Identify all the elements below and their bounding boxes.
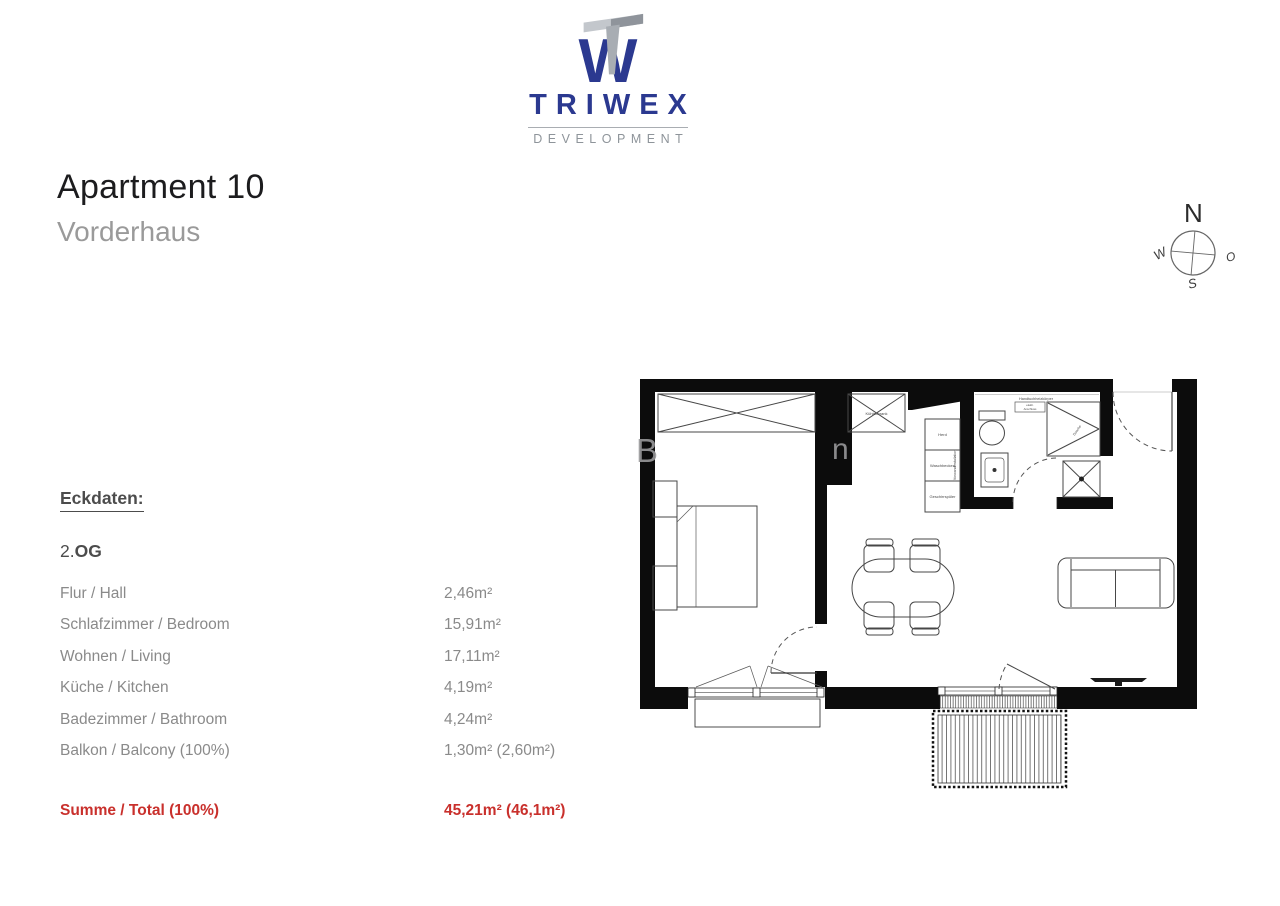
tv xyxy=(1090,678,1147,686)
fridge: Kühlschrank xyxy=(848,394,905,432)
exterior-walls xyxy=(640,379,1197,709)
brand-divider xyxy=(528,127,688,128)
total-value: 45,21m² (46,1m²) xyxy=(444,802,565,820)
entrance-door xyxy=(1113,392,1172,451)
total-row: Summe / Total (100%) 45,21m² (46,1m²) xyxy=(60,802,620,820)
room-label: Wohnen / Living xyxy=(60,648,444,666)
table-row: Küche / Kitchen 4,19m² xyxy=(60,679,620,710)
balcony-decking xyxy=(938,715,1061,783)
table-row: Balkon / Balcony (100%) 1,30m² (2,60m²) xyxy=(60,742,620,773)
living-room xyxy=(852,539,1174,686)
room-area-value: 1,30m² (2,60m²) xyxy=(444,742,555,760)
room-label: Flur / Hall xyxy=(60,585,444,603)
shower: Dusche xyxy=(1047,402,1100,456)
page-subtitle: Vorderhaus xyxy=(57,216,265,248)
nightstand xyxy=(653,481,677,517)
toilet xyxy=(979,411,1005,445)
watermark-fragment: n xyxy=(832,433,849,466)
room-area-value: 15,91m² xyxy=(444,616,501,634)
double-bed xyxy=(653,481,757,610)
dining-chair xyxy=(864,539,940,635)
room-label: Badezimmer / Bathroom xyxy=(60,711,444,729)
brand-logo: W TRIWEX DEVELOPMENT xyxy=(508,10,708,146)
wardrobe xyxy=(658,394,815,432)
sofa xyxy=(1058,558,1174,608)
watermark-fragment: B xyxy=(638,432,658,469)
balcony-threshold xyxy=(940,696,1057,708)
kitchen-shaft xyxy=(908,392,964,410)
room-label: Küche / Kitchen xyxy=(60,679,444,697)
compass-south-label: S xyxy=(1186,275,1198,292)
bathroom-door xyxy=(1013,458,1057,509)
nightstand xyxy=(653,566,677,610)
window-sill xyxy=(695,699,820,727)
bedroom-window xyxy=(688,666,824,727)
room-area-value: 4,24m² xyxy=(444,711,492,729)
floor-plan-drawing: B n xyxy=(638,377,1198,812)
sink-label: Waschbecken xyxy=(930,463,955,468)
balcony-door xyxy=(938,664,1057,695)
note-line-2: Anschluss xyxy=(1024,407,1037,411)
compass-rose: N W O S xyxy=(1146,194,1246,304)
compass-north-label: N xyxy=(1184,198,1203,228)
floor-label: OG xyxy=(75,541,102,561)
installation-note: Vorwandinstallation xyxy=(953,450,957,480)
room-area-value: 17,11m² xyxy=(444,648,500,666)
total-label: Summe / Total (100%) xyxy=(60,802,444,820)
table-row: Schlafzimmer / Bedroom 15,91m² xyxy=(60,616,620,647)
room-label: Balkon / Balcony (100%) xyxy=(60,742,444,760)
room-area-value: 2,46m² xyxy=(444,585,492,603)
balcony xyxy=(933,664,1066,787)
area-table: Flur / Hall 2,46m² Schlafzimmer / Bedroo… xyxy=(60,585,620,773)
key-data-heading: Eckdaten: xyxy=(60,488,144,512)
dishwasher-label: Geschirrspüler xyxy=(929,494,956,499)
compass-east-label: O xyxy=(1224,249,1236,265)
bathroom-sink xyxy=(981,453,1008,487)
key-data-section: Eckdaten: 2.OG Flur / Hall 2,46m² Schlaf… xyxy=(60,488,620,773)
interior-walls xyxy=(815,392,1113,687)
compass-west-label: W xyxy=(1151,243,1170,263)
title-block: Apartment 10 Vorderhaus xyxy=(57,168,265,248)
shower-label: Dusche xyxy=(1072,424,1082,436)
floor-indicator: 2.OG xyxy=(60,541,620,562)
radiator-label: Handtuchheizkörper xyxy=(1019,397,1054,401)
table-row: Wohnen / Living 17,11m² xyxy=(60,648,620,679)
logo-w-t-mark: W xyxy=(553,10,663,88)
room-area-value: 4,19m² xyxy=(444,679,492,697)
bedroom xyxy=(653,394,824,727)
room-label: Schlafzimmer / Bedroom xyxy=(60,616,444,634)
stove-label: Herd xyxy=(938,432,947,437)
washing-machine xyxy=(1063,461,1100,497)
bedroom-door xyxy=(771,627,817,673)
bathroom: Handtuchheizkörper elektr. Anschluss Dus… xyxy=(975,395,1100,510)
floor-number: 2. xyxy=(60,541,75,561)
brand-name: TRIWEX xyxy=(508,89,708,122)
triwex-logo-icon: W xyxy=(508,10,708,88)
table-row: Badezimmer / Bathroom 4,24m² xyxy=(60,711,620,742)
floorplan-sheet: W TRIWEX DEVELOPMENT Apartment 10 Vorder… xyxy=(0,0,1280,906)
kitchen: Kühlschrank Herd Waschbecken Geschirrspü… xyxy=(848,394,960,512)
table-row: Flur / Hall 2,46m² xyxy=(60,585,620,616)
brand-tagline: DEVELOPMENT xyxy=(508,132,708,146)
fridge-label: Kühlschrank xyxy=(865,411,887,416)
page-title: Apartment 10 xyxy=(57,168,265,207)
dining-table xyxy=(852,559,954,617)
